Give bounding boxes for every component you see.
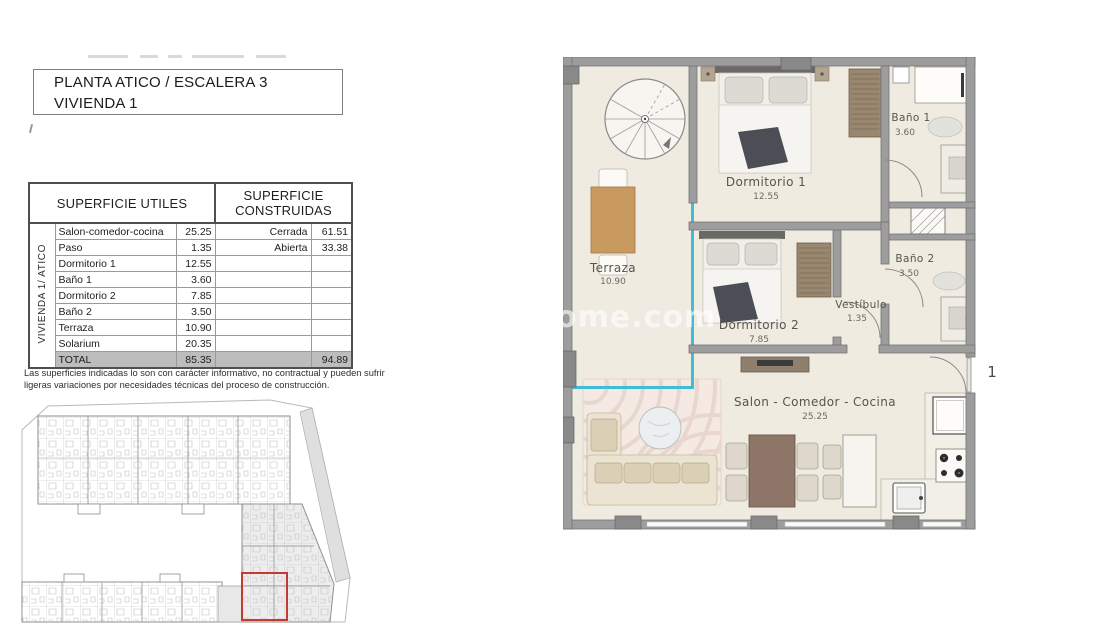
total-label: TOTAL <box>55 352 176 369</box>
site-plan <box>12 396 352 626</box>
room-m2: 1.35 <box>176 240 215 256</box>
title-box: PLANTA ATICO / ESCALERA 3 VIVIENDA 1 <box>33 69 343 115</box>
room-m2: 3.50 <box>176 304 215 320</box>
ghost-mark <box>140 55 158 58</box>
kitchen-sink <box>893 483 925 513</box>
total-row: TOTAL 85.35 94.89 <box>29 352 352 369</box>
hallway-area: 1.35 <box>847 314 867 324</box>
built-m2: 61.51 <box>311 223 352 240</box>
room-m2: 7.85 <box>176 288 215 304</box>
table-row: Terraza 10.90 <box>29 320 352 336</box>
watermark: home.com <box>563 300 716 335</box>
bedroom-2-label: Dormitorio 2 <box>719 318 799 332</box>
table-row: Solarium 20.35 <box>29 336 352 352</box>
built-name: Abierta <box>215 240 311 256</box>
title-line-2: VIVIENDA 1 <box>54 93 342 114</box>
unit-number: 1 <box>987 363 997 381</box>
title-line-1: PLANTA ATICO / ESCALERA 3 <box>54 72 342 93</box>
glass-wall-vertical <box>691 203 694 389</box>
room-name: Dormitorio 2 <box>55 288 176 304</box>
shaft <box>911 208 945 234</box>
bed-dormitorio-1 <box>701 65 829 173</box>
ghost-mark <box>192 55 244 58</box>
table-row: VIVIENDA 1/ ATICO Salon-comedor-cocina 2… <box>29 223 352 240</box>
room-name: Salon-comedor-cocina <box>55 223 176 240</box>
fridge <box>933 397 967 434</box>
room-m2: 12.55 <box>176 256 215 272</box>
toilet <box>933 272 965 290</box>
table-row: Baño 2 3.50 <box>29 304 352 320</box>
built-surfaces-header: SUPERFICIE CONSTRUIDAS <box>215 183 352 223</box>
side-label: VIVIENDA 1/ ATICO <box>37 244 48 344</box>
room-m2: 10.90 <box>176 320 215 336</box>
disclaimer: Las superficies indicadas lo son con car… <box>24 367 384 391</box>
terrace-area: 10.90 <box>600 277 626 287</box>
bathroom-2-label: Baño 2 <box>895 253 934 265</box>
room-name: Baño 2 <box>55 304 176 320</box>
side-label-cell: VIVIENDA 1/ ATICO <box>29 223 55 368</box>
bedroom-2-area: 7.85 <box>749 335 769 345</box>
window-icon <box>893 67 909 83</box>
ghost-mark <box>168 55 182 58</box>
hallway-label: Vestíbulo <box>835 299 887 311</box>
bathroom-1-label: Baño 1 <box>891 112 930 124</box>
table-row: Dormitorio 2 7.85 <box>29 288 352 304</box>
bathroom-2-area: 3.50 <box>899 269 919 279</box>
tv-console <box>741 357 809 372</box>
entrance-door-leaf <box>967 358 971 392</box>
table-row: Dormitorio 1 12.55 <box>29 256 352 272</box>
room-name: Baño 1 <box>55 272 176 288</box>
ghost-mark <box>256 55 286 58</box>
areas-table: SUPERFICIE UTILES SUPERFICIE CONSTRUIDAS… <box>28 182 353 369</box>
built-name: Cerrada <box>215 223 311 240</box>
useful-surfaces-header: SUPERFICIE UTILES <box>29 183 215 223</box>
room-m2: 3.60 <box>176 272 215 288</box>
cooktop <box>936 449 967 482</box>
toilet <box>928 117 962 137</box>
room-name: Dormitorio 1 <box>55 256 176 272</box>
built-m2: 33.38 <box>311 240 352 256</box>
room-name: Terraza <box>55 320 176 336</box>
room-name: Solarium <box>55 336 176 352</box>
coffee-table <box>639 407 681 449</box>
wardrobe-dormitorio-2 <box>797 243 831 297</box>
disclaimer-line-2: ligeras variaciones por necesidades técn… <box>24 379 384 391</box>
floor-plan-sheet: PLANTA ATICO / ESCALERA 3 VIVIENDA 1 SUP… <box>0 0 1110 626</box>
bedroom-1-label: Dormitorio 1 <box>726 175 806 189</box>
terrace-label: Terraza <box>589 261 636 275</box>
bedroom-1-area: 12.55 <box>753 192 779 202</box>
apartment-floor-plan: home.com Terraza 10.90 Dormitorio 1 12.5… <box>563 57 1010 537</box>
glass-wall-terrace <box>571 386 691 389</box>
room-m2: 25.25 <box>176 223 215 240</box>
room-m2: 20.35 <box>176 336 215 352</box>
stray-tick <box>29 124 33 133</box>
table-row: Paso 1.35 Abierta 33.38 <box>29 240 352 256</box>
total-built-m2: 94.89 <box>311 352 352 369</box>
table-row: Baño 1 3.60 <box>29 272 352 288</box>
shower <box>915 67 973 103</box>
site-top-block <box>38 416 290 514</box>
spiral-staircase <box>605 79 685 159</box>
bathroom-1-area: 3.60 <box>895 128 915 138</box>
living-room-label: Salon - Comedor - Cocina <box>734 395 896 409</box>
living-room-area: 25.25 <box>802 412 828 422</box>
tv <box>757 360 793 366</box>
shower-screen <box>961 73 964 97</box>
wardrobe-dormitorio-1 <box>849 69 881 137</box>
total-useful-m2: 85.35 <box>176 352 215 369</box>
ghost-mark <box>88 55 128 58</box>
disclaimer-line-1: Las superficies indicadas lo son con car… <box>24 367 384 379</box>
room-name: Paso <box>55 240 176 256</box>
